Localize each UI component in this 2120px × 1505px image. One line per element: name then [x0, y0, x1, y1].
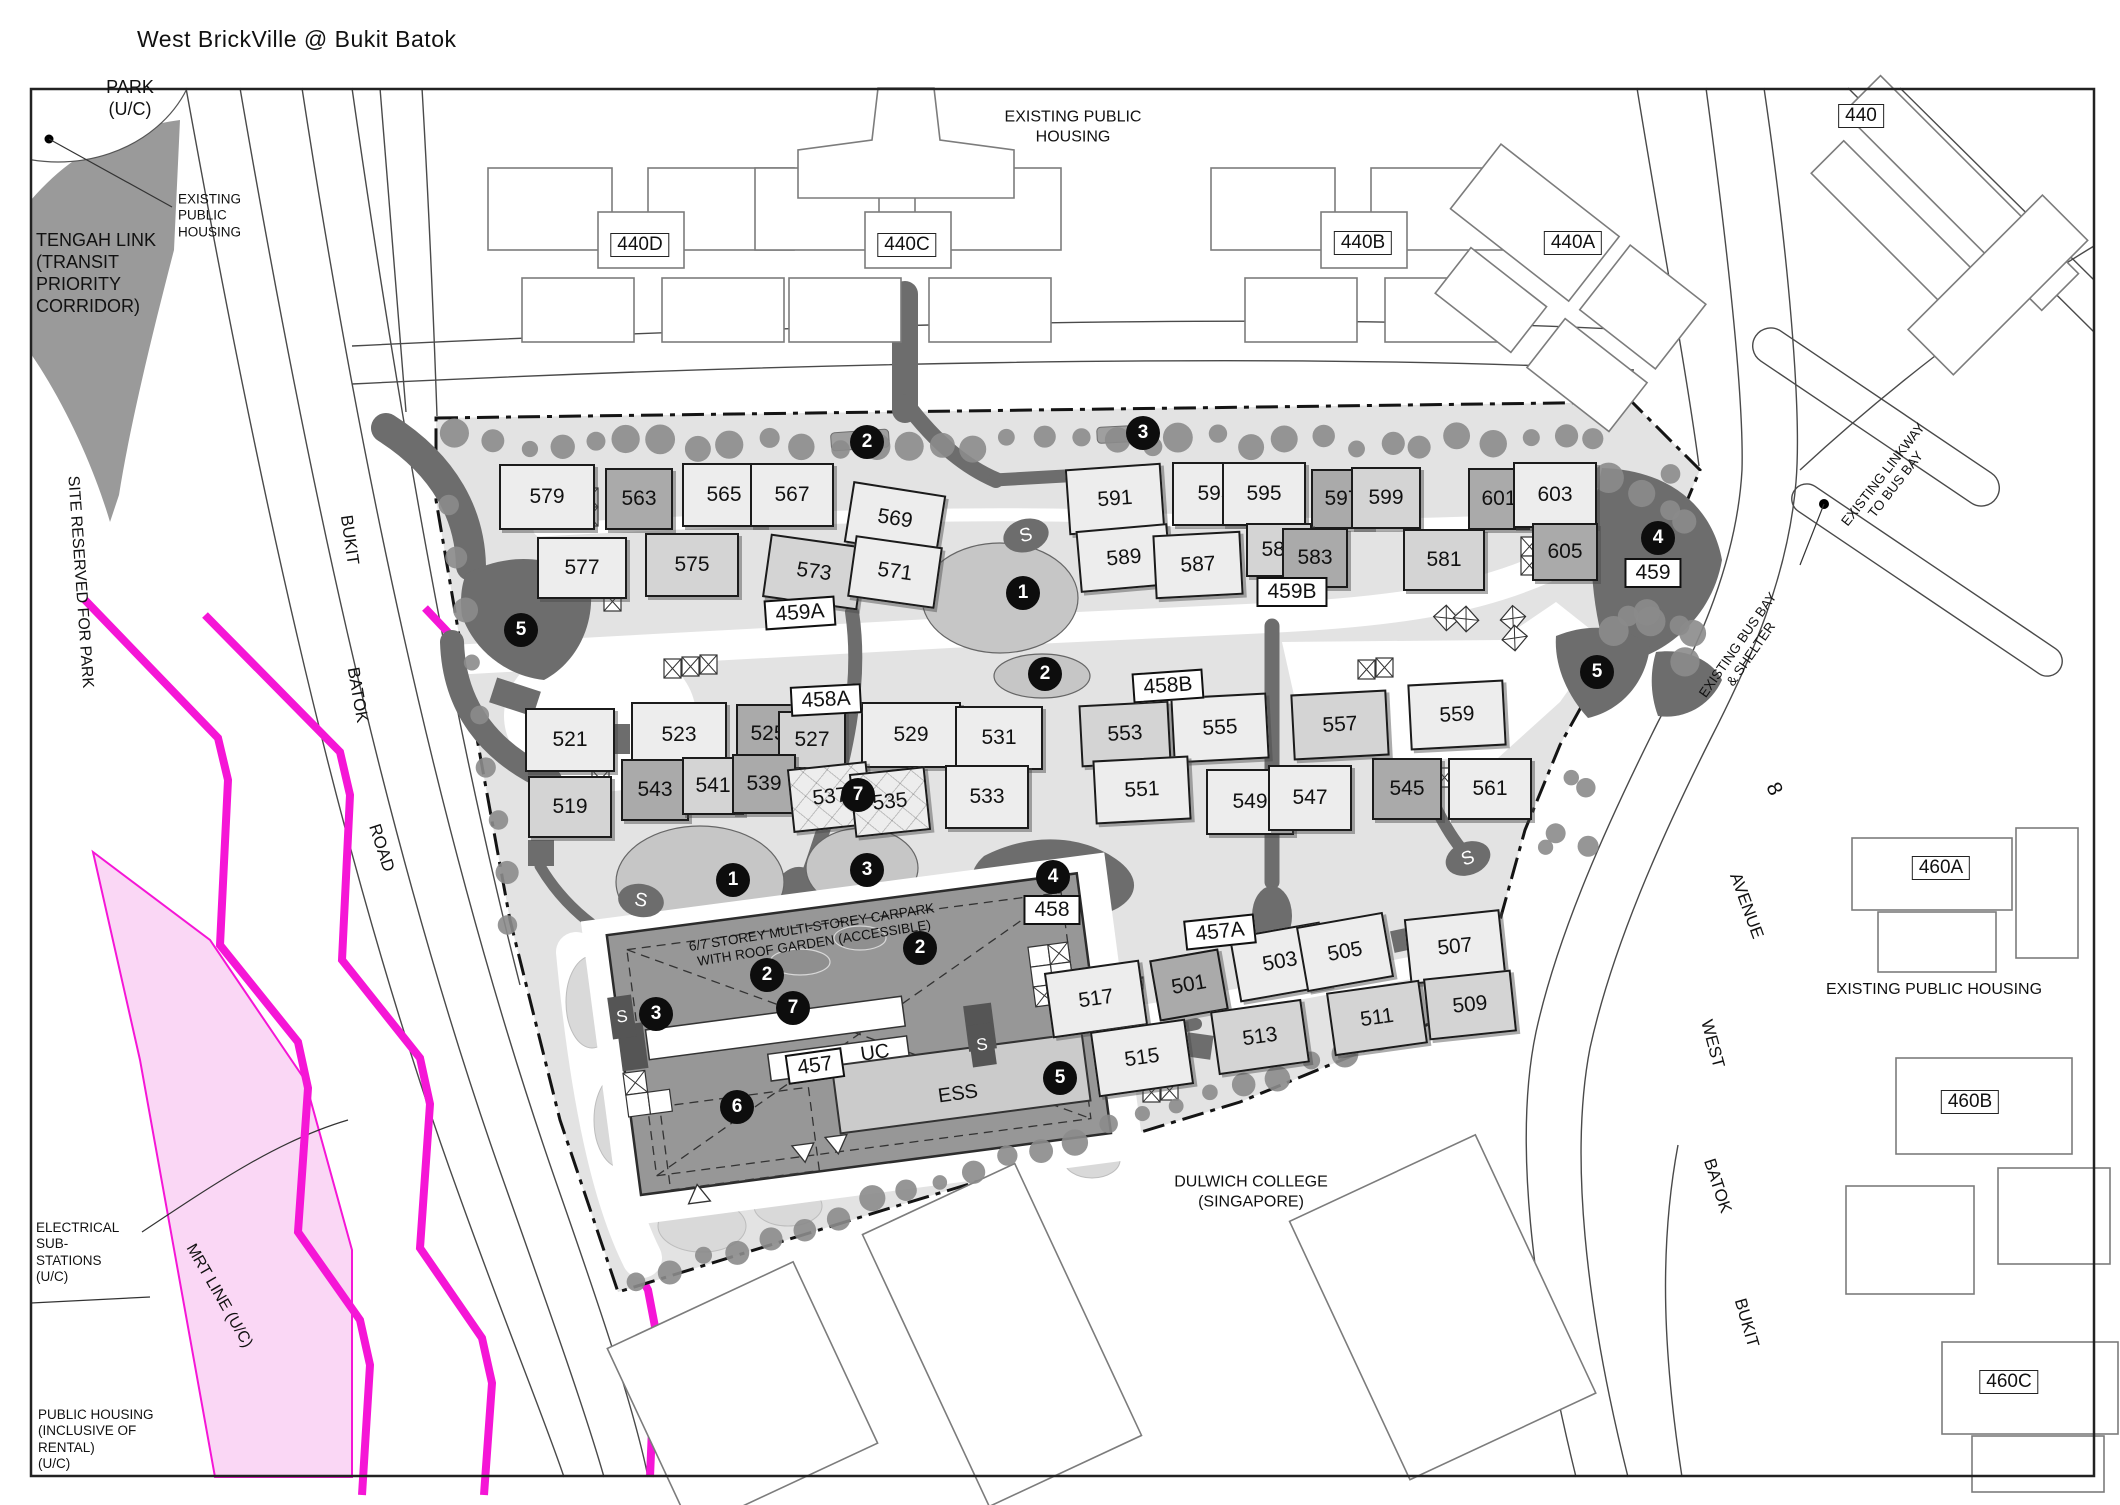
marker-5-14: 5 [1043, 1061, 1077, 1095]
label-uc-line0: UC [859, 1039, 891, 1067]
building-529: 529 [861, 702, 961, 768]
label-existing-public-housing-top-line1: HOUSING [1005, 127, 1142, 147]
label-tengah-link-line1: (TRANSIT [36, 252, 156, 274]
building-515: 515 [1090, 1019, 1194, 1098]
building-555: 555 [1170, 693, 1269, 764]
marker-5-2: 5 [504, 613, 538, 647]
label-public-housing-rental-line0: PUBLIC HOUSING [38, 1407, 154, 1423]
estate-label-440B: 440B [1334, 231, 1392, 255]
building-511: 511 [1326, 980, 1428, 1056]
block-440-outline [1767, 54, 2099, 386]
label-uc: UC [859, 1039, 891, 1067]
building-509: 509 [1423, 970, 1517, 1041]
precinct-label-458B: 458B [1132, 669, 1205, 704]
label-public-housing-rental-line3: (U/C) [38, 1456, 154, 1472]
label-public-housing-rental: PUBLIC HOUSING(INCLUSIVE OFRENTAL)(U/C) [38, 1407, 154, 1473]
marker-2-0: 2 [850, 425, 884, 459]
building-575: 575 [645, 533, 739, 597]
precinct-label-458A: 458A [790, 683, 863, 717]
marker-1-3: 1 [1006, 576, 1040, 610]
building-567: 567 [750, 463, 834, 527]
building-543: 543 [621, 759, 689, 821]
label-public-housing-rental-line2: RENTAL) [38, 1440, 154, 1456]
marker-7-12: 7 [776, 991, 810, 1025]
label-dulwich-college: DULWICH COLLEGE(SINGAPORE) [1174, 1172, 1328, 1211]
label-tengah-link-line2: PRIORITY [36, 274, 156, 296]
label-dulwich-college-line0: DULWICH COLLEGE [1174, 1172, 1328, 1192]
building-559: 559 [1407, 680, 1506, 751]
marker-6-13: 6 [720, 1090, 754, 1124]
precinct-label-459A: 459A [764, 596, 837, 631]
label-existing-public-housing-right-line0: EXISTING PUBLIC HOUSING [1826, 980, 2042, 1000]
building-563: 563 [605, 468, 673, 530]
estate-label-460C: 460C [1979, 1370, 2038, 1394]
label-dulwich-college-line1: (SINGAPORE) [1174, 1192, 1328, 1212]
block-460C-outline [1942, 1342, 2118, 1492]
label-tengah-link: TENGAH LINK(TRANSITPRIORITYCORRIDOR) [36, 230, 156, 318]
building-557: 557 [1290, 690, 1389, 761]
parcel-line [31, 1297, 150, 1303]
label-park-line0: PARK [106, 77, 154, 99]
building-579: 579 [499, 464, 595, 530]
label-existing-public-housing-top: EXISTING PUBLICHOUSING [1005, 107, 1142, 146]
label-existing-public-housing-callout-line0: EXISTING [178, 191, 241, 207]
building-595: 595 [1222, 462, 1306, 526]
site-plan-graphics [0, 0, 2120, 1505]
label-existing-public-housing-top-line0: EXISTING PUBLIC [1005, 107, 1142, 127]
label-park: PARK(U/C) [106, 77, 154, 121]
building-599: 599 [1351, 467, 1421, 529]
label-existing-public-housing-callout-line2: HOUSING [178, 224, 241, 240]
building-545: 545 [1372, 758, 1442, 820]
building-531: 531 [955, 706, 1043, 770]
building-581: 581 [1403, 529, 1485, 591]
label-electrical-substations-line3: (U/C) [36, 1269, 119, 1285]
label-electrical-substations-line0: ELECTRICAL [36, 1220, 119, 1236]
building-571: 571 [847, 535, 943, 609]
label-park-line1: (U/C) [106, 99, 154, 121]
page-title: West BrickVille @ Bukit Batok [137, 26, 457, 53]
overhead-link [798, 88, 1014, 198]
label-tengah-link-line0: TENGAH LINK [36, 230, 156, 252]
label-public-housing-rental-line1: (INCLUSIVE OF [38, 1424, 154, 1440]
building-539: 539 [732, 754, 796, 814]
building-603: 603 [1513, 462, 1597, 528]
estate-label-440D: 440D [610, 233, 669, 257]
estate-label-440C: 440C [877, 233, 936, 257]
label-electrical-substations-line1: SUB- [36, 1237, 119, 1253]
playground [922, 543, 1078, 653]
marker-3-11: 3 [639, 997, 673, 1031]
building-513: 513 [1210, 999, 1310, 1075]
building-577: 577 [537, 537, 627, 599]
building-519: 519 [528, 776, 612, 838]
marker-5-15: 5 [1580, 655, 1614, 689]
label-existing-public-housing-callout-line1: PUBLIC [178, 208, 241, 224]
marker-2-4: 2 [1028, 657, 1062, 691]
marker-4-8: 4 [1036, 860, 1070, 894]
label-electrical-substations-line2: STATIONS [36, 1253, 119, 1269]
precinct-label-458: 458 [1023, 895, 1080, 925]
estate-label-440A: 440A [1544, 231, 1602, 255]
marker-7-5: 7 [841, 778, 875, 812]
marker-2-10: 2 [750, 958, 784, 992]
building-533: 533 [945, 765, 1029, 829]
building-605: 605 [1532, 523, 1598, 581]
estate-label-440: 440 [1838, 104, 1884, 128]
building-561: 561 [1448, 758, 1532, 820]
building-521: 521 [525, 708, 615, 772]
building-547: 547 [1268, 765, 1352, 831]
label-existing-public-housing-right: EXISTING PUBLIC HOUSING [1826, 980, 2042, 1000]
marker-4-16: 4 [1641, 521, 1675, 555]
marker-3-7: 3 [850, 853, 884, 887]
linkway-leader [1800, 504, 1824, 565]
marker-1-6: 1 [716, 863, 750, 897]
marker-3-1: 3 [1126, 416, 1160, 450]
building-551: 551 [1092, 756, 1191, 825]
label-electrical-substations: ELECTRICALSUB-STATIONS(U/C) [36, 1220, 119, 1286]
label-existing-public-housing-callout: EXISTINGPUBLICHOUSING [178, 191, 241, 240]
building-587: 587 [1152, 531, 1243, 600]
estate-label-460A: 460A [1912, 856, 1970, 880]
block-460A-outline [1852, 828, 2078, 972]
estate-label-460B: 460B [1941, 1090, 1999, 1114]
site-plan: West BrickVille @ Bukit Batok 5795635655… [0, 0, 2120, 1505]
precinct-label-459: 459 [1624, 558, 1681, 588]
label-tengah-link-line3: CORRIDOR) [36, 296, 156, 318]
precinct-label-459B: 459B [1256, 577, 1327, 607]
